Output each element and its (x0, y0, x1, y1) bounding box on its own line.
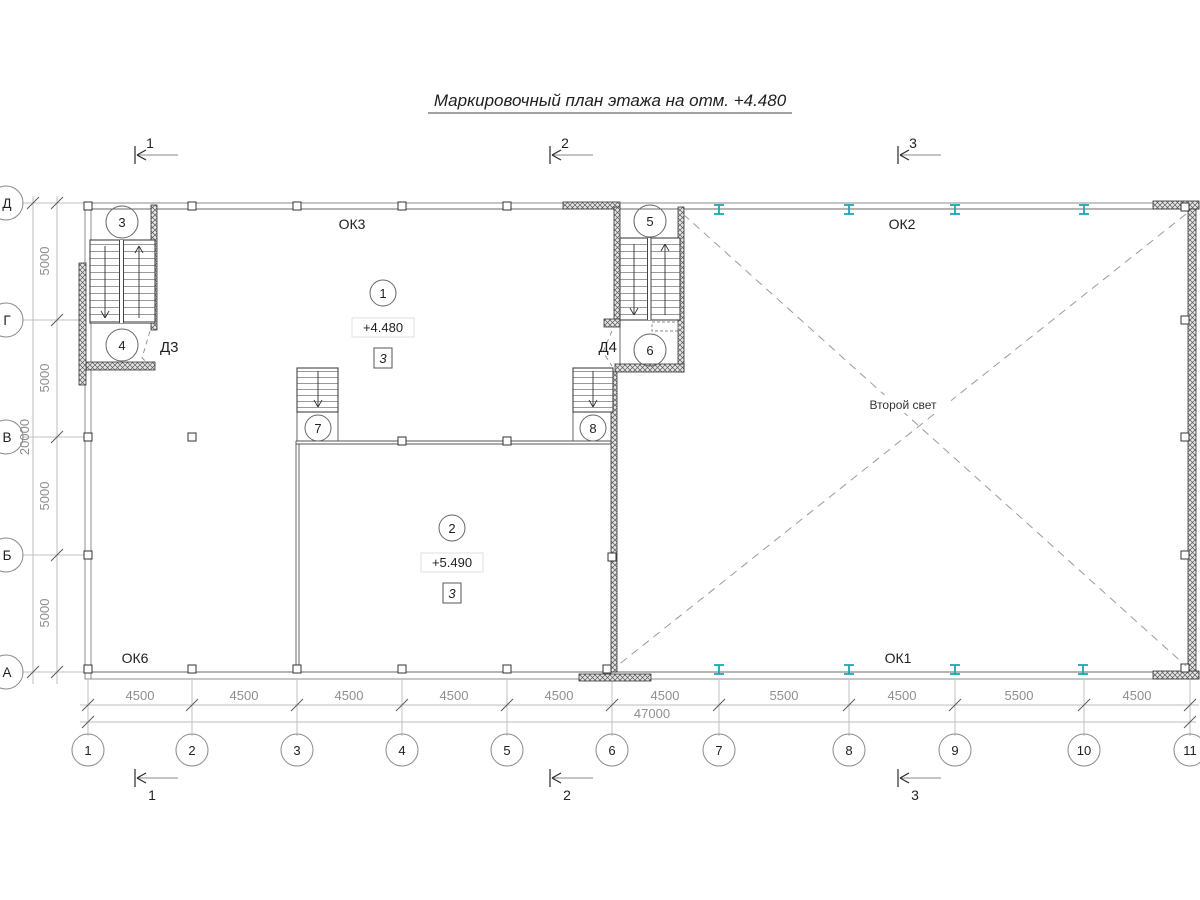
dim-label: 4500 (651, 688, 680, 703)
section-marker-top-1 (135, 146, 178, 164)
section-number: 1 (148, 787, 156, 803)
dimension-labels: 4500 4500 4500 4500 4500 4500 5500 4500 … (17, 247, 1151, 721)
stair-d4 (620, 238, 680, 331)
stair-number: 4 (118, 338, 125, 353)
room-annotations: +4.480 3 +5.490 3 (352, 318, 483, 603)
axis-col-label: 9 (951, 743, 958, 758)
plan-canvas: 4500 4500 4500 4500 4500 4500 5500 4500 … (0, 0, 1200, 900)
stair-landing-dashed (652, 322, 678, 331)
void-label: Второй свет (869, 398, 937, 412)
axis-col-label: 10 (1077, 743, 1091, 758)
dim-label: 4500 (335, 688, 364, 703)
stair-7 (297, 368, 338, 412)
dim-label: 4500 (126, 688, 155, 703)
section-number: 3 (911, 787, 919, 803)
dim-label: 5500 (1005, 688, 1034, 703)
dim-label: 5000 (37, 247, 52, 276)
room-elevation: +5.490 (432, 555, 472, 570)
drawing-title: Маркировочный план этажа на отм. +4.480 (434, 91, 787, 110)
axis-col-label: 7 (715, 743, 722, 758)
room-type-box: 3 (448, 586, 456, 601)
section-number: 1 (146, 135, 154, 151)
axis-row-label: Б (3, 548, 12, 563)
grid-extension-lines (22, 203, 1190, 736)
section-number: 2 (563, 787, 571, 803)
stair-number: 6 (646, 343, 653, 358)
void-cross-lines (617, 214, 1186, 666)
dim-total-label: 20000 (17, 419, 32, 455)
axis-row-label: В (2, 430, 11, 445)
axis-bubbles-bottom: 1 2 3 4 5 6 7 8 9 10 11 (72, 734, 1200, 766)
section-marker-bottom-3 (898, 769, 941, 787)
axis-row-label: Г (3, 313, 11, 328)
section-marker-bottom-2 (550, 769, 593, 787)
stair-8 (573, 368, 613, 412)
stair-number: 8 (589, 421, 596, 436)
dim-label: 4500 (440, 688, 469, 703)
axis-row-label: А (2, 665, 11, 680)
room-number: 1 (379, 286, 386, 301)
stair-number: 5 (646, 214, 653, 229)
window-label: ОК1 (885, 650, 912, 666)
dim-label: 5000 (37, 364, 52, 393)
floor-plan-drawing: 4500 4500 4500 4500 4500 4500 5500 4500 … (0, 0, 1200, 900)
stair-number: 3 (118, 215, 125, 230)
axis-col-label: 11 (1183, 743, 1197, 758)
section-number: 3 (909, 135, 917, 151)
dim-label: 4500 (545, 688, 574, 703)
axis-col-label: 2 (188, 743, 195, 758)
door-tag: Д3 (160, 339, 179, 356)
section-marker-top-3 (898, 146, 941, 164)
dim-label: 5000 (37, 482, 52, 511)
section-number: 2 (561, 135, 569, 151)
stair-d3 (90, 240, 155, 323)
dim-label: 5500 (770, 688, 799, 703)
axis-col-label: 6 (608, 743, 615, 758)
dim-label: 4500 (888, 688, 917, 703)
room2-walls (296, 320, 680, 672)
window-label: ОК3 (339, 216, 366, 232)
window-label: ОК6 (122, 650, 149, 666)
section-marker-bottom-1 (135, 769, 178, 787)
axis-col-label: 5 (503, 743, 510, 758)
axis-col-label: 3 (293, 743, 300, 758)
window-label: ОК2 (889, 216, 916, 232)
section-marker-top-2 (550, 146, 593, 164)
stair-number: 7 (314, 421, 321, 436)
steel-column-icons (714, 205, 1089, 674)
dim-label: 4500 (230, 688, 259, 703)
axis-row-label: Д (2, 196, 11, 211)
dim-label: 5000 (37, 599, 52, 628)
room-type-box: 3 (379, 351, 387, 366)
door-tag: Д4 (598, 339, 617, 356)
dim-total-label: 47000 (634, 706, 670, 721)
room-number: 2 (448, 521, 455, 536)
axis-col-label: 8 (845, 743, 852, 758)
axis-col-label: 4 (398, 743, 405, 758)
room-elevation: +4.480 (363, 320, 403, 335)
axis-col-label: 1 (84, 743, 91, 758)
dim-label: 4500 (1123, 688, 1152, 703)
